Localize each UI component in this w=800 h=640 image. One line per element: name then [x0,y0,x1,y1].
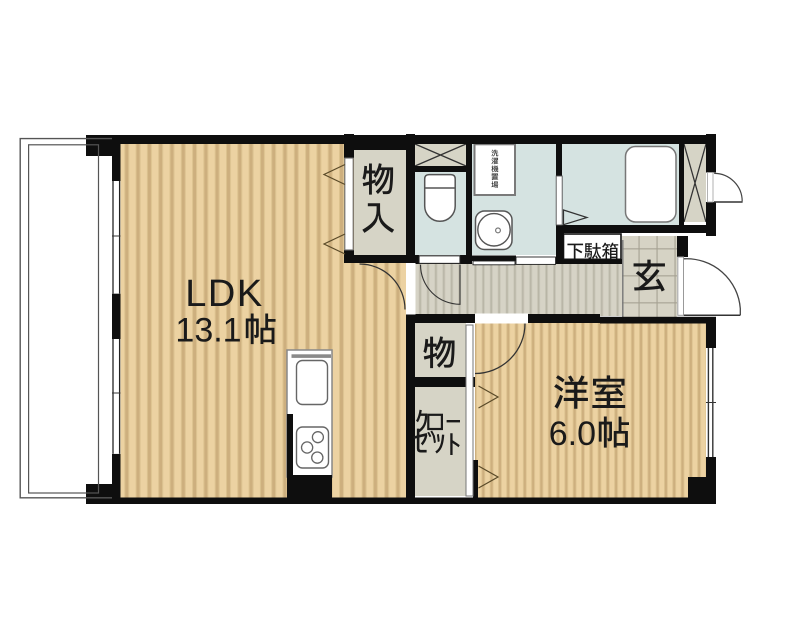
svg-text:6.0: 6.0 [549,415,596,453]
svg-text:13.1: 13.1 [175,312,241,350]
svg-text:LDK: LDK [185,273,263,315]
